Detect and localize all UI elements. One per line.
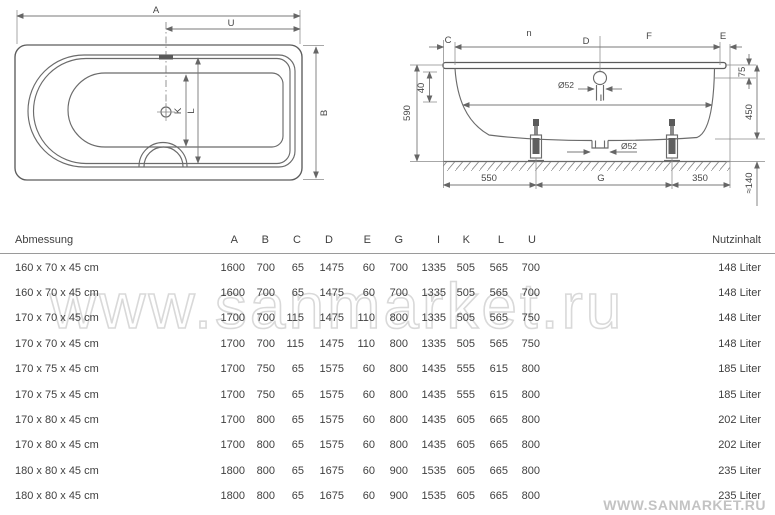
row-value-B: 700 bbox=[245, 262, 275, 274]
label-overflow-diameter: Ø52 bbox=[558, 80, 574, 90]
table-row: 160 x 70 x 45 cm160070065147560700133550… bbox=[0, 280, 775, 305]
spec-sheet: { "top_view": { "labels": { "length": "A… bbox=[0, 0, 775, 515]
top-view-diagram: A U B K L bbox=[0, 0, 390, 228]
header-col-D: D bbox=[304, 234, 344, 246]
row-value-E: 60 bbox=[344, 389, 375, 401]
label-450: 450 bbox=[744, 104, 755, 120]
row-value-K: 605 bbox=[446, 465, 475, 477]
dimension-line-K: K bbox=[173, 75, 186, 146]
label-140: ≈140 bbox=[744, 172, 755, 193]
row-capacity: 148 Liter bbox=[540, 287, 761, 299]
row-size: 180 x 80 x 45 cm bbox=[15, 465, 205, 477]
row-value-A: 1800 bbox=[205, 465, 245, 477]
table-row: 170 x 70 x 45 cm170070011514751108001335… bbox=[0, 306, 775, 331]
row-value-C: 115 bbox=[275, 312, 304, 324]
row-value-I: 1335 bbox=[408, 262, 446, 274]
label-350: 350 bbox=[692, 173, 708, 184]
row-value-I: 1435 bbox=[408, 389, 446, 401]
row-size: 160 x 70 x 45 cm bbox=[15, 287, 205, 299]
overflow-diameter-dim: Ø52 bbox=[558, 80, 622, 90]
row-value-I: 1435 bbox=[408, 439, 446, 451]
table-row: 170 x 75 x 45 cm170075065157560800143555… bbox=[0, 382, 775, 407]
label-drain-diameter: Ø52 bbox=[621, 141, 637, 151]
row-value-B: 750 bbox=[245, 363, 275, 375]
dimension-table: Abmessung ABCDEGIKLUNutzinhalt 160 x 70 … bbox=[0, 228, 775, 509]
row-capacity: 235 Liter bbox=[540, 490, 761, 502]
row-value-U: 700 bbox=[508, 262, 540, 274]
row-value-K: 555 bbox=[446, 389, 475, 401]
table-row: 170 x 75 x 45 cm170075065157560800143555… bbox=[0, 357, 775, 382]
row-value-D: 1475 bbox=[304, 338, 344, 350]
grip-arc bbox=[139, 143, 187, 167]
row-value-G: 800 bbox=[375, 414, 408, 426]
row-value-L: 565 bbox=[475, 262, 508, 274]
row-value-U: 800 bbox=[508, 465, 540, 477]
row-value-A: 1700 bbox=[205, 414, 245, 426]
label-B: B bbox=[319, 110, 330, 116]
row-value-K: 605 bbox=[446, 414, 475, 426]
dimension-line-A: A bbox=[17, 5, 300, 44]
table-row: 160 x 70 x 45 cm160070065147560700133550… bbox=[0, 255, 775, 280]
row-value-D: 1575 bbox=[304, 363, 344, 375]
row-value-I: 1435 bbox=[408, 414, 446, 426]
row-value-L: 665 bbox=[475, 414, 508, 426]
row-value-B: 750 bbox=[245, 389, 275, 401]
row-capacity: 202 Liter bbox=[540, 439, 761, 451]
label-n: n bbox=[526, 28, 531, 39]
row-value-B: 700 bbox=[245, 312, 275, 324]
row-size: 170 x 80 x 45 cm bbox=[15, 414, 205, 426]
row-value-A: 1700 bbox=[205, 338, 245, 350]
table-row: 170 x 80 x 45 cm170080065157560800143560… bbox=[0, 407, 775, 432]
row-value-E: 110 bbox=[344, 338, 375, 350]
row-size: 170 x 70 x 45 cm bbox=[15, 338, 205, 350]
row-capacity: 148 Liter bbox=[540, 338, 761, 350]
row-value-K: 505 bbox=[446, 338, 475, 350]
row-value-U: 800 bbox=[508, 389, 540, 401]
table-row: 170 x 80 x 45 cm170080065157560800143560… bbox=[0, 433, 775, 458]
row-value-I: 1335 bbox=[408, 312, 446, 324]
row-value-L: 615 bbox=[475, 389, 508, 401]
row-value-A: 1700 bbox=[205, 312, 245, 324]
row-value-B: 700 bbox=[245, 338, 275, 350]
label-K: K bbox=[173, 107, 184, 114]
row-value-D: 1675 bbox=[304, 465, 344, 477]
row-value-G: 700 bbox=[375, 262, 408, 274]
drain-outlet bbox=[592, 141, 608, 149]
row-value-A: 1800 bbox=[205, 490, 245, 502]
header-col-U: U bbox=[508, 234, 540, 246]
row-value-E: 60 bbox=[344, 363, 375, 375]
row-value-C: 65 bbox=[275, 439, 304, 451]
label-U: U bbox=[228, 18, 235, 29]
label-590: 590 bbox=[402, 105, 413, 121]
row-value-U: 800 bbox=[508, 439, 540, 451]
row-value-K: 505 bbox=[446, 287, 475, 299]
ground-hatching bbox=[443, 162, 730, 172]
foot-left bbox=[528, 119, 544, 189]
row-value-E: 60 bbox=[344, 490, 375, 502]
row-value-B: 800 bbox=[245, 439, 275, 451]
row-value-D: 1475 bbox=[304, 287, 344, 299]
row-value-E: 60 bbox=[344, 414, 375, 426]
dimension-590: 590 bbox=[402, 65, 443, 162]
row-size: 170 x 70 x 45 cm bbox=[15, 312, 205, 324]
row-value-D: 1575 bbox=[304, 389, 344, 401]
dimension-line-I: I bbox=[463, 93, 712, 105]
row-value-C: 115 bbox=[275, 338, 304, 350]
row-value-E: 60 bbox=[344, 262, 375, 274]
row-value-I: 1535 bbox=[408, 490, 446, 502]
row-capacity: 185 Liter bbox=[540, 363, 761, 375]
row-value-C: 65 bbox=[275, 287, 304, 299]
row-value-A: 1600 bbox=[205, 287, 245, 299]
header-rule bbox=[0, 253, 775, 254]
row-size: 160 x 70 x 45 cm bbox=[15, 262, 205, 274]
dimension-140: ≈140 bbox=[726, 162, 765, 207]
tub-outline-top bbox=[15, 45, 302, 180]
row-value-L: 665 bbox=[475, 490, 508, 502]
row-value-G: 800 bbox=[375, 389, 408, 401]
row-value-E: 60 bbox=[344, 287, 375, 299]
row-size: 170 x 75 x 45 cm bbox=[15, 389, 205, 401]
row-value-D: 1675 bbox=[304, 490, 344, 502]
dimension-40: 40 bbox=[416, 72, 437, 102]
label-L: L bbox=[186, 108, 197, 113]
row-capacity: 202 Liter bbox=[540, 414, 761, 426]
row-value-G: 700 bbox=[375, 287, 408, 299]
label-A: A bbox=[153, 5, 160, 16]
row-value-L: 615 bbox=[475, 363, 508, 375]
label-550: 550 bbox=[481, 173, 497, 184]
row-value-I: 1535 bbox=[408, 465, 446, 477]
row-value-B: 800 bbox=[245, 414, 275, 426]
header-col-E: E bbox=[344, 234, 375, 246]
label-G: G bbox=[597, 173, 604, 184]
table-body: 160 x 70 x 45 cm160070065147560700133550… bbox=[0, 255, 775, 509]
drain-symbol bbox=[157, 22, 175, 121]
row-capacity: 235 Liter bbox=[540, 465, 761, 477]
header-col-C: C bbox=[275, 234, 304, 246]
label-F: F bbox=[646, 31, 652, 42]
header-col-L: L bbox=[475, 234, 508, 246]
label-C: C bbox=[445, 35, 452, 46]
row-size: 170 x 75 x 45 cm bbox=[15, 363, 205, 375]
row-value-C: 65 bbox=[275, 262, 304, 274]
row-value-G: 800 bbox=[375, 312, 408, 324]
label-75: 75 bbox=[737, 67, 748, 78]
row-value-B: 800 bbox=[245, 465, 275, 477]
row-value-C: 65 bbox=[275, 490, 304, 502]
row-value-A: 1700 bbox=[205, 389, 245, 401]
label-I: I bbox=[600, 93, 603, 104]
row-value-G: 800 bbox=[375, 363, 408, 375]
foot-right bbox=[664, 119, 680, 189]
dimension-75: 75 bbox=[715, 54, 756, 89]
row-value-D: 1475 bbox=[304, 312, 344, 324]
header-col-K: K bbox=[446, 234, 475, 246]
header-col-B: B bbox=[245, 234, 275, 246]
table-row: 180 x 80 x 45 cm180080065167560900153560… bbox=[0, 458, 775, 483]
header-col-G: G bbox=[375, 234, 408, 246]
row-value-K: 605 bbox=[446, 490, 475, 502]
row-value-B: 800 bbox=[245, 490, 275, 502]
row-value-C: 65 bbox=[275, 363, 304, 375]
row-value-I: 1335 bbox=[408, 338, 446, 350]
row-value-U: 750 bbox=[508, 312, 540, 324]
row-value-E: 110 bbox=[344, 312, 375, 324]
row-value-K: 505 bbox=[446, 262, 475, 274]
side-view-diagram: C n D F E I Ø52 Ø52 590 40 75 bbox=[390, 0, 775, 228]
row-value-D: 1475 bbox=[304, 262, 344, 274]
row-value-U: 800 bbox=[508, 414, 540, 426]
bottom-dimension-lines: 550 G 350 bbox=[444, 173, 731, 185]
row-value-K: 605 bbox=[446, 439, 475, 451]
row-value-C: 65 bbox=[275, 414, 304, 426]
table-row: 170 x 70 x 45 cm170070011514751108001335… bbox=[0, 331, 775, 356]
row-value-K: 505 bbox=[446, 312, 475, 324]
header-col-A: A bbox=[205, 234, 245, 246]
table-row: 180 x 80 x 45 cm180080065167560900153560… bbox=[0, 484, 775, 509]
drain-diameter-dim: Ø52 bbox=[567, 141, 637, 152]
label-40: 40 bbox=[416, 83, 427, 94]
label-D: D bbox=[583, 36, 590, 47]
row-value-I: 1435 bbox=[408, 363, 446, 375]
header-capacity: Nutzinhalt bbox=[540, 234, 761, 246]
row-value-L: 665 bbox=[475, 465, 508, 477]
header-dimension: Abmessung bbox=[15, 234, 205, 246]
row-value-E: 60 bbox=[344, 439, 375, 451]
row-value-B: 700 bbox=[245, 287, 275, 299]
row-value-L: 565 bbox=[475, 287, 508, 299]
row-capacity: 148 Liter bbox=[540, 312, 761, 324]
row-value-U: 700 bbox=[508, 287, 540, 299]
row-value-K: 555 bbox=[446, 363, 475, 375]
dimension-line-B: B bbox=[303, 46, 330, 180]
row-value-C: 65 bbox=[275, 389, 304, 401]
row-value-G: 800 bbox=[375, 338, 408, 350]
row-value-G: 900 bbox=[375, 465, 408, 477]
table-header: Abmessung ABCDEGIKLUNutzinhalt bbox=[0, 228, 775, 251]
row-value-U: 800 bbox=[508, 363, 540, 375]
row-value-D: 1575 bbox=[304, 439, 344, 451]
row-capacity: 185 Liter bbox=[540, 389, 761, 401]
row-value-G: 900 bbox=[375, 490, 408, 502]
row-value-D: 1575 bbox=[304, 414, 344, 426]
row-value-L: 565 bbox=[475, 312, 508, 324]
row-value-A: 1600 bbox=[205, 262, 245, 274]
row-value-I: 1335 bbox=[408, 287, 446, 299]
row-size: 180 x 80 x 45 cm bbox=[15, 490, 205, 502]
row-value-G: 800 bbox=[375, 439, 408, 451]
header-col-I: I bbox=[408, 234, 446, 246]
row-value-U: 750 bbox=[508, 338, 540, 350]
row-value-U: 800 bbox=[508, 490, 540, 502]
row-capacity: 148 Liter bbox=[540, 262, 761, 274]
row-value-A: 1700 bbox=[205, 439, 245, 451]
row-value-L: 665 bbox=[475, 439, 508, 451]
row-value-L: 565 bbox=[475, 338, 508, 350]
row-size: 170 x 80 x 45 cm bbox=[15, 439, 205, 451]
dimension-line-U: U bbox=[166, 18, 300, 29]
row-value-E: 60 bbox=[344, 465, 375, 477]
row-value-C: 65 bbox=[275, 465, 304, 477]
row-value-A: 1700 bbox=[205, 363, 245, 375]
label-E: E bbox=[720, 31, 726, 42]
